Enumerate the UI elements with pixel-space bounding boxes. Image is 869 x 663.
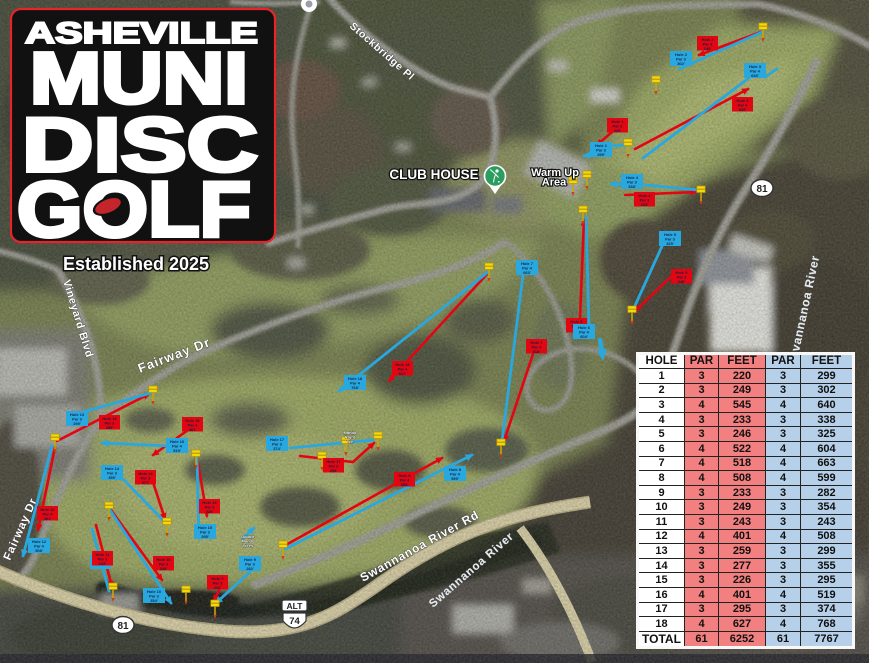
svg-text:277': 277' <box>142 480 150 485</box>
svg-text:508': 508' <box>35 548 43 553</box>
svg-text:519': 519' <box>173 448 181 453</box>
svg-text:249': 249' <box>704 46 712 51</box>
svg-text:259': 259' <box>106 425 114 430</box>
svg-text:233': 233' <box>214 585 222 590</box>
svg-text:CLUB HOUSE: CLUB HOUSE <box>389 167 478 182</box>
svg-text:302': 302' <box>677 61 685 66</box>
svg-text:354': 354' <box>150 598 158 603</box>
svg-text:220': 220' <box>614 128 622 133</box>
svg-text:246': 246' <box>678 279 686 284</box>
svg-text:768': 768' <box>351 385 359 390</box>
svg-text:Established 2025: Established 2025 <box>63 254 209 274</box>
svg-text:508': 508' <box>401 482 409 487</box>
svg-text:401': 401' <box>44 516 52 521</box>
svg-text:282': 282' <box>246 566 254 571</box>
svg-text:243': 243' <box>99 561 107 566</box>
svg-text:299': 299' <box>73 421 81 426</box>
svg-text:74: 74 <box>289 616 300 627</box>
svg-text:325': 325' <box>666 241 674 246</box>
svg-text:Area: Area <box>542 177 567 189</box>
svg-text:355': 355' <box>108 475 116 480</box>
svg-text:401': 401' <box>189 427 197 432</box>
svg-text:338': 338' <box>628 184 636 189</box>
svg-text:545': 545' <box>739 107 747 112</box>
svg-text:GOLF: GOLF <box>17 165 251 253</box>
svg-text:299': 299' <box>597 152 605 157</box>
svg-text:374': 374' <box>273 446 281 451</box>
svg-text:81: 81 <box>756 184 768 195</box>
svg-text:Trees: Trees <box>243 543 254 548</box>
svg-text:518': 518' <box>533 349 541 354</box>
svg-text:81: 81 <box>117 621 129 632</box>
svg-text:295': 295' <box>201 534 209 539</box>
svg-text:663': 663' <box>523 270 531 275</box>
svg-text:249': 249' <box>160 566 168 571</box>
svg-text:604': 604' <box>580 334 588 339</box>
svg-text:Tee: Tee <box>347 439 354 444</box>
svg-text:ALT: ALT <box>287 601 304 611</box>
svg-text:627': 627' <box>399 371 407 376</box>
svg-text:599': 599' <box>451 476 459 481</box>
svg-text:295': 295' <box>330 468 338 473</box>
svg-text:640': 640' <box>751 73 759 78</box>
svg-text:233': 233' <box>641 202 649 207</box>
svg-text:226': 226' <box>206 509 214 514</box>
